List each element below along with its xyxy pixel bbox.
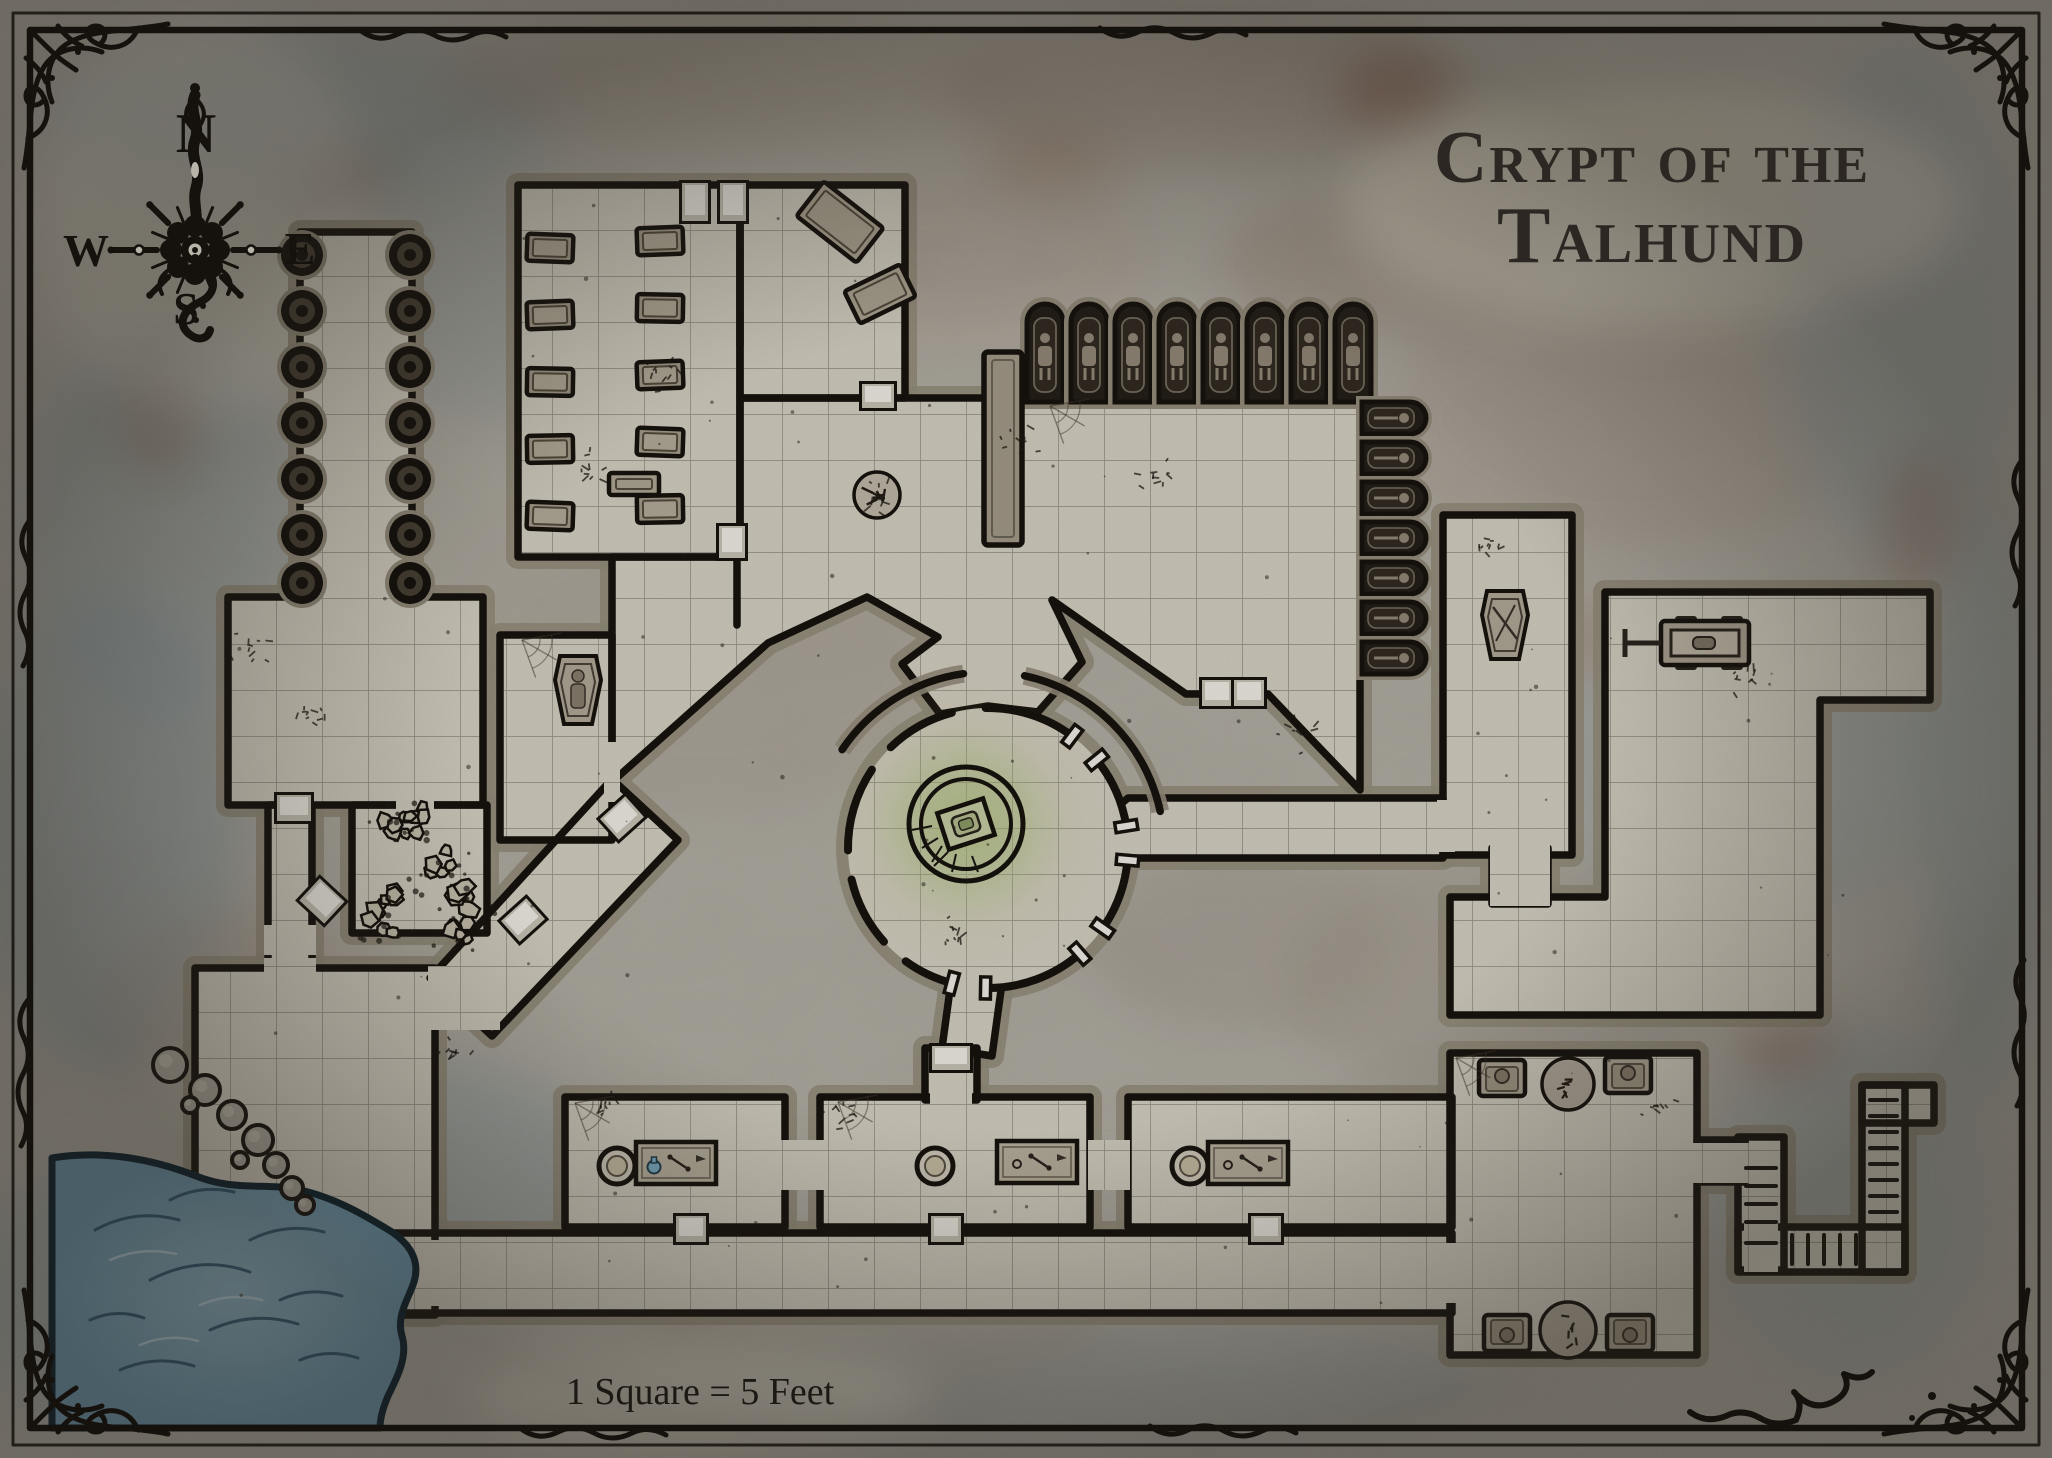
corner-dot xyxy=(1971,1403,1977,1409)
compass-north-label: N xyxy=(176,103,216,165)
tail-dot xyxy=(200,303,206,309)
map-scale-label: 1 Square = 5 Feet xyxy=(566,1371,835,1413)
corner-dot xyxy=(27,27,37,37)
rosette-dot xyxy=(192,247,198,253)
map-title-line2: Talhund xyxy=(1497,192,1807,280)
compass-east-label: E xyxy=(285,223,316,274)
compass-south-label: S xyxy=(173,283,199,334)
dungeon-map-page: N W E S Crypt of the Talhund 1 Square = … xyxy=(0,0,2052,1458)
flourish-dot xyxy=(1909,1415,1915,1421)
corner-dot xyxy=(2015,1421,2025,1431)
ray-bead xyxy=(135,246,144,255)
ray-tip xyxy=(237,201,244,208)
ray-tip xyxy=(146,292,153,299)
ray-tip xyxy=(276,247,283,254)
corner-dot xyxy=(75,49,81,55)
corner-dot xyxy=(75,1403,81,1409)
corner-dot xyxy=(1971,49,1977,55)
compass-tip xyxy=(190,83,200,93)
corner-dot xyxy=(2015,27,2025,37)
ray-tip xyxy=(146,201,153,208)
corner-dot xyxy=(49,1377,55,1383)
ray-tip xyxy=(237,292,244,299)
ray-bead xyxy=(247,246,256,255)
corner-dot xyxy=(1997,1377,2003,1383)
corner-dot xyxy=(27,1421,37,1431)
corner-dot xyxy=(1997,75,2003,81)
compass-west-label: W xyxy=(63,225,109,276)
corner-dot xyxy=(49,75,55,81)
map-title-line1: Crypt of the xyxy=(1434,117,1870,199)
flourish-dot xyxy=(1928,1392,1936,1400)
dungeon-map-image: N W E S Crypt of the Talhund 1 Square = … xyxy=(0,0,2052,1458)
